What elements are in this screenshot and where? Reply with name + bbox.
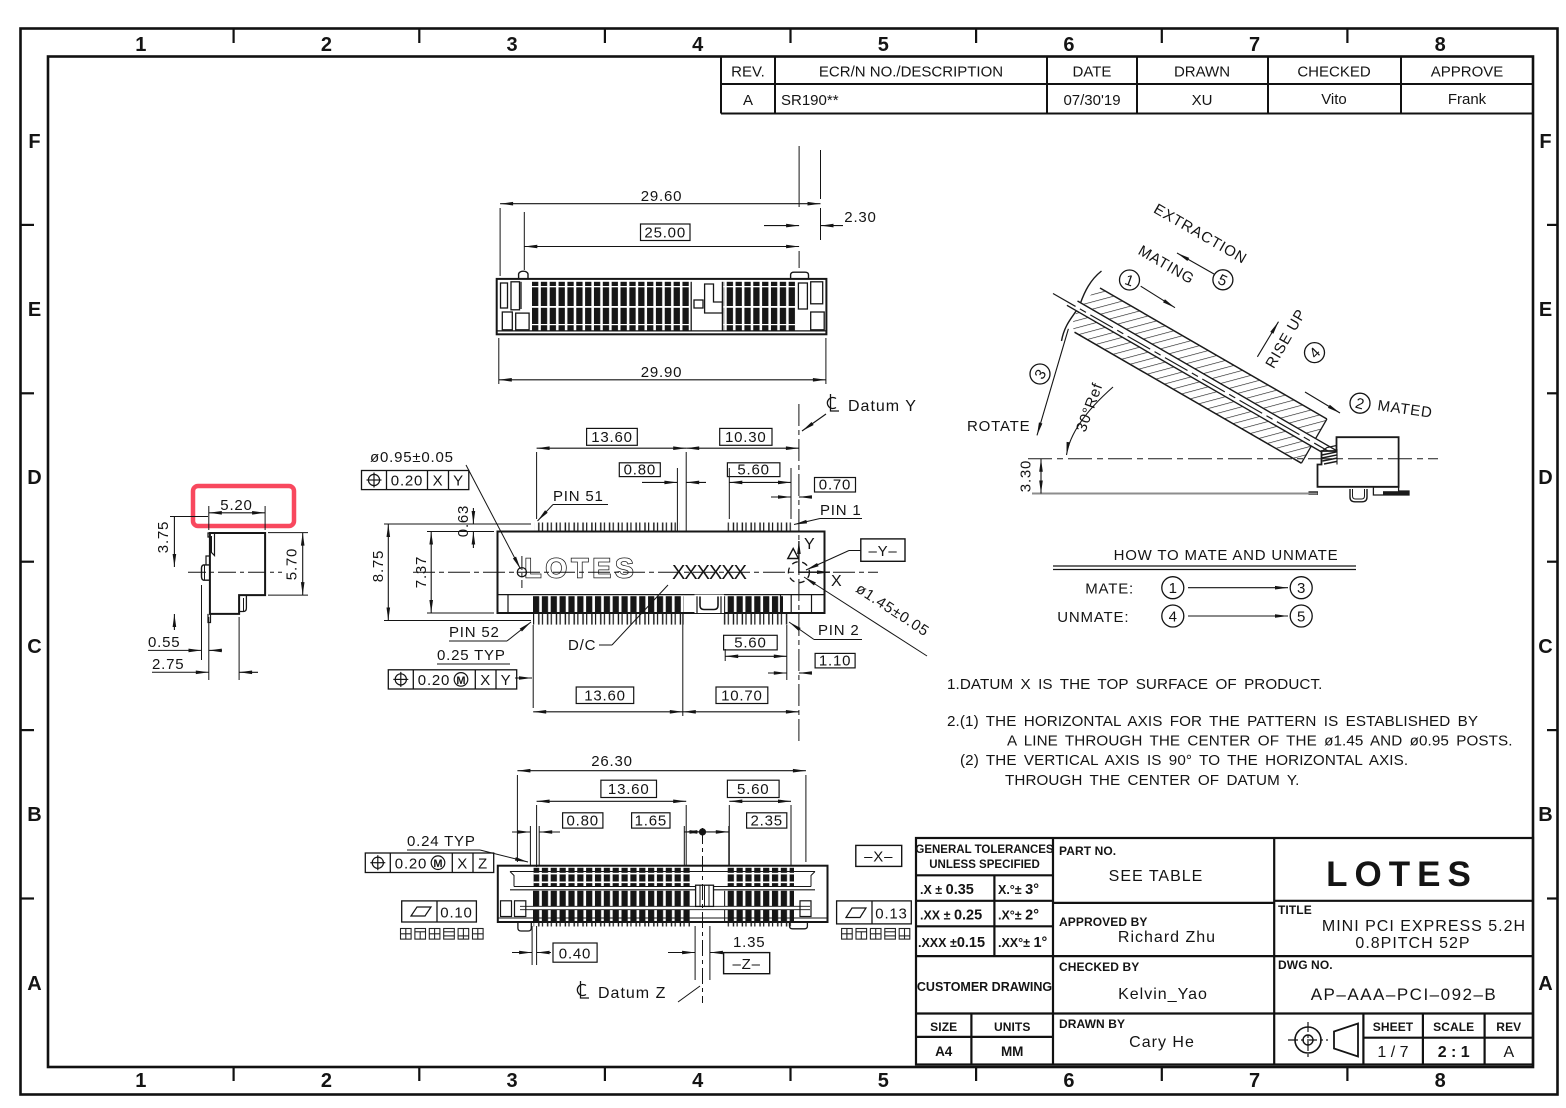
svg-text:MATE:: MATE: (1085, 581, 1134, 598)
svg-text:13.60: 13.60 (584, 688, 626, 705)
svg-text:MM: MM (1001, 1044, 1024, 1059)
svg-text:.XX°± 1°: .XX°± 1° (998, 935, 1048, 951)
svg-text:10.30: 10.30 (725, 429, 767, 446)
svg-text:5: 5 (878, 34, 889, 56)
svg-text:5: 5 (878, 1070, 889, 1092)
svg-text:10.70: 10.70 (721, 688, 763, 705)
svg-text:DWG NO.: DWG NO. (1278, 958, 1333, 972)
svg-text:5.60: 5.60 (737, 781, 769, 798)
svg-text:6: 6 (1063, 34, 1074, 56)
svg-text:1.10: 1.10 (819, 652, 851, 669)
svg-text:0.80: 0.80 (624, 461, 656, 478)
svg-text:13.60: 13.60 (608, 781, 650, 798)
svg-text:0.70: 0.70 (819, 477, 851, 494)
svg-text:SCALE: SCALE (1433, 1020, 1474, 1034)
svg-text:PART NO.: PART NO. (1059, 844, 1116, 858)
svg-text:SIZE: SIZE (930, 1020, 957, 1034)
svg-text:1.65: 1.65 (635, 813, 667, 830)
svg-text:8.75: 8.75 (370, 550, 387, 582)
svg-text:5.60: 5.60 (737, 461, 769, 478)
svg-text:2: 2 (321, 1070, 332, 1092)
svg-text:AP–AAA–PCI–092–B: AP–AAA–PCI–092–B (1311, 985, 1498, 1004)
svg-text:F: F (28, 131, 40, 153)
svg-text:0.20: 0.20 (395, 855, 427, 872)
svg-text:A: A (27, 973, 41, 995)
svg-text:M: M (433, 858, 442, 870)
svg-text:0.20: 0.20 (391, 473, 423, 490)
svg-text:1: 1 (1169, 580, 1177, 597)
svg-text:APPROVED BY: APPROVED BY (1059, 915, 1147, 929)
svg-text:M: M (456, 675, 465, 687)
svg-text:A: A (1503, 1044, 1514, 1061)
svg-text:4: 4 (692, 34, 704, 56)
svg-text:A LINE THROUGH THE CENTER OF T: A LINE THROUGH THE CENTER OF THE ø1.45 A… (1007, 733, 1513, 750)
svg-text:HOW TO MATE AND UNMATE: HOW TO MATE AND UNMATE (1114, 547, 1339, 564)
svg-text:DATE: DATE (1073, 64, 1112, 81)
svg-text:Y: Y (804, 536, 815, 553)
svg-text:0.63: 0.63 (455, 505, 472, 537)
svg-text:3.75: 3.75 (155, 521, 172, 553)
svg-text:0.40: 0.40 (559, 946, 591, 963)
svg-text:.X°± 2°: .X°± 2° (998, 908, 1039, 924)
svg-text:SR190**: SR190** (781, 92, 839, 109)
svg-text:.XXX ±0.15: .XXX ±0.15 (918, 935, 985, 951)
svg-text:A: A (1538, 973, 1552, 995)
svg-text:0.20: 0.20 (418, 672, 450, 689)
svg-text:1: 1 (135, 1070, 146, 1092)
svg-text:7.37: 7.37 (413, 556, 430, 588)
svg-text:Z: Z (478, 855, 488, 872)
svg-text:.XX ± 0.25: .XX ± 0.25 (920, 908, 982, 924)
svg-text:Richard Zhu: Richard Zhu (1118, 929, 1216, 946)
svg-text:X: X (457, 855, 468, 872)
svg-text:2.(1) THE HORIZONTAL AXIS FOR: 2.(1) THE HORIZONTAL AXIS FOR THE PATTER… (947, 713, 1478, 730)
svg-text:XXXXXX: XXXXXX (672, 562, 747, 584)
svg-text:2.30: 2.30 (844, 209, 876, 226)
svg-text:Y: Y (501, 672, 512, 689)
svg-text:(2) THE VERTICAL AXIS IS 90° T: (2) THE VERTICAL AXIS IS 90° TO THE HORI… (960, 752, 1408, 769)
svg-text:4: 4 (1169, 609, 1177, 626)
svg-text:2.75: 2.75 (152, 656, 184, 673)
svg-text:Vito: Vito (1321, 91, 1347, 108)
svg-text:D: D (27, 467, 41, 489)
svg-text:PIN 52: PIN 52 (449, 624, 500, 641)
svg-text:SEE TABLE: SEE TABLE (1109, 868, 1204, 885)
svg-text:B: B (1538, 804, 1552, 826)
svg-text:8: 8 (1435, 34, 1446, 56)
svg-text:E: E (28, 299, 41, 321)
svg-text:PIN 51: PIN 51 (553, 488, 604, 505)
svg-text:CHECKED BY: CHECKED BY (1059, 960, 1139, 974)
svg-text:29.60: 29.60 (641, 188, 683, 205)
svg-text:UNITS: UNITS (994, 1020, 1031, 1034)
svg-text:2: 2 (321, 34, 332, 56)
svg-text:0.55: 0.55 (148, 634, 180, 651)
svg-text:6: 6 (1063, 1070, 1074, 1092)
svg-text:0.8PITCH 52P: 0.8PITCH 52P (1355, 935, 1470, 952)
svg-text:0.80: 0.80 (566, 813, 598, 830)
svg-text:DRAWN BY: DRAWN BY (1059, 1017, 1125, 1031)
svg-text:29.90: 29.90 (641, 364, 683, 381)
svg-text:A: A (743, 92, 753, 109)
svg-text:1: 1 (135, 34, 146, 56)
svg-text:PIN 1: PIN 1 (820, 502, 862, 519)
svg-text:MINI PCI EXPRESS 5.2H: MINI PCI EXPRESS 5.2H (1322, 918, 1526, 935)
svg-text:5.60: 5.60 (734, 634, 766, 651)
svg-text:–X–: –X– (864, 849, 893, 866)
svg-text:REV: REV (1496, 1020, 1521, 1034)
svg-text:5: 5 (1297, 609, 1305, 626)
svg-text:D: D (1538, 467, 1552, 489)
svg-text:X.°± 3°: X.°± 3° (998, 882, 1039, 898)
svg-text:PIN 2: PIN 2 (818, 622, 860, 639)
svg-text:CUSTOMER DRAWING: CUSTOMER DRAWING (917, 980, 1052, 994)
svg-text:D/C: D/C (568, 637, 596, 654)
svg-text:3.30: 3.30 (1018, 460, 1035, 492)
svg-text:ø0.95±0.05: ø0.95±0.05 (370, 449, 454, 466)
svg-text:Datum Y: Datum Y (848, 398, 917, 415)
svg-text:7: 7 (1249, 34, 1260, 56)
svg-text:SHEET: SHEET (1373, 1020, 1414, 1034)
svg-text:UNLESS SPECIFIED: UNLESS SPECIFIED (929, 859, 1040, 871)
svg-text:0.24 TYP: 0.24 TYP (407, 833, 476, 850)
svg-text:LOTES: LOTES (1326, 855, 1478, 894)
svg-text:A4: A4 (935, 1044, 953, 1059)
svg-text:UNMATE:: UNMATE: (1057, 609, 1129, 626)
svg-text:13.60: 13.60 (591, 429, 633, 446)
svg-text:0.10: 0.10 (440, 905, 472, 922)
svg-text:Kelvin_Yao: Kelvin_Yao (1118, 986, 1208, 1003)
svg-text:2 : 1: 2 : 1 (1438, 1044, 1470, 1061)
svg-text:LOTES: LOTES (524, 553, 637, 584)
svg-text:B: B (27, 804, 41, 826)
svg-text:REV.: REV. (731, 64, 765, 81)
svg-text:4: 4 (692, 1070, 704, 1092)
svg-text:E: E (1539, 299, 1552, 321)
svg-text:Y: Y (453, 473, 464, 490)
svg-text:–Y–: –Y– (868, 543, 897, 560)
svg-text:1.35: 1.35 (733, 934, 765, 951)
svg-text:C: C (27, 636, 41, 658)
svg-text:26.30: 26.30 (591, 753, 633, 770)
svg-text:CHECKED: CHECKED (1297, 64, 1371, 81)
svg-text:–Z–: –Z– (732, 956, 760, 973)
svg-text:DRAWN: DRAWN (1174, 64, 1230, 81)
svg-text:APPROVE: APPROVE (1431, 64, 1504, 81)
svg-text:5.70: 5.70 (284, 548, 301, 580)
svg-text:ROTATE: ROTATE (967, 418, 1030, 435)
svg-text:Datum Z: Datum Z (598, 985, 666, 1002)
svg-text:X: X (433, 473, 444, 490)
svg-text:THROUGH THE CENTER OF DATUM Y.: THROUGH THE CENTER OF DATUM Y. (1005, 772, 1300, 789)
svg-text:C: C (1538, 636, 1552, 658)
svg-text:X: X (831, 573, 842, 590)
svg-text:ECR/N NO./DESCRIPTION: ECR/N NO./DESCRIPTION (819, 64, 1003, 81)
svg-text:X: X (480, 672, 491, 689)
svg-text:1 / 7: 1 / 7 (1377, 1044, 1408, 1061)
svg-text:8: 8 (1435, 1070, 1446, 1092)
svg-text:3: 3 (507, 34, 518, 56)
svg-text:TITLE: TITLE (1278, 903, 1312, 917)
svg-text:3: 3 (1297, 580, 1305, 597)
svg-text:1.DATUM X IS THE TOP SURFACE O: 1.DATUM X IS THE TOP SURFACE OF PRODUCT. (947, 676, 1323, 693)
svg-text:5.20: 5.20 (220, 497, 252, 514)
svg-text:0.13: 0.13 (875, 906, 907, 923)
svg-text:3: 3 (507, 1070, 518, 1092)
svg-text:25.00: 25.00 (644, 225, 686, 242)
svg-text:2.35: 2.35 (750, 813, 782, 830)
svg-text:07/30'19: 07/30'19 (1063, 92, 1120, 109)
svg-text:Frank: Frank (1448, 91, 1487, 108)
svg-text:.X ± 0.35: .X ± 0.35 (920, 882, 974, 898)
svg-text:7: 7 (1249, 1070, 1260, 1092)
svg-text:Cary He: Cary He (1129, 1034, 1195, 1051)
svg-text:GENERAL TOLERANCES: GENERAL TOLERANCES (915, 844, 1054, 856)
svg-text:F: F (1539, 131, 1551, 153)
svg-text:0.25 TYP: 0.25 TYP (437, 647, 506, 664)
svg-text:XU: XU (1192, 92, 1213, 109)
